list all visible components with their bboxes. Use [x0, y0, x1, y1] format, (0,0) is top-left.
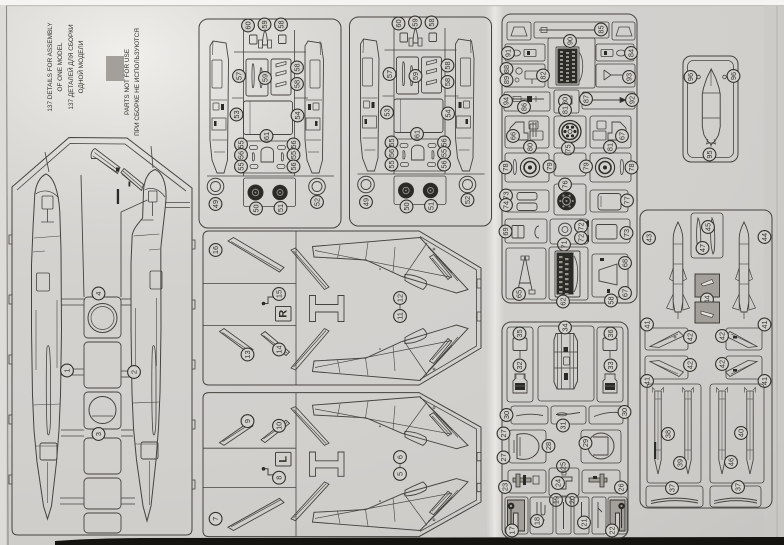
- svg-text:55: 55: [387, 138, 396, 146]
- svg-text:61: 61: [262, 132, 271, 140]
- svg-text:41: 41: [642, 320, 651, 328]
- svg-text:50: 50: [251, 204, 260, 212]
- svg-text:34: 34: [560, 323, 569, 331]
- svg-text:PARTS NOT FOR USE: PARTS NOT FOR USE: [124, 49, 131, 115]
- svg-text:57: 57: [385, 70, 394, 78]
- svg-text:36: 36: [606, 329, 615, 337]
- svg-text:73: 73: [622, 229, 631, 237]
- svg-text:91: 91: [503, 49, 512, 57]
- svg-text:16: 16: [211, 246, 220, 254]
- svg-text:82: 82: [538, 71, 547, 79]
- svg-text:56: 56: [289, 162, 298, 170]
- svg-text:96: 96: [729, 72, 738, 80]
- svg-text:53: 53: [382, 108, 391, 116]
- svg-text:37: 37: [733, 483, 742, 491]
- svg-text:81: 81: [560, 106, 569, 114]
- svg-text:42: 42: [685, 333, 694, 341]
- svg-text:56: 56: [439, 160, 448, 168]
- svg-text:75: 75: [563, 144, 572, 152]
- svg-text:69: 69: [501, 227, 510, 235]
- svg-text:58: 58: [276, 20, 285, 28]
- svg-text:49: 49: [211, 200, 220, 208]
- svg-text:53: 53: [232, 110, 241, 118]
- svg-text:56: 56: [387, 149, 396, 157]
- svg-text:137 DETAILS FOR ASSEMBLY: 137 DETAILS FOR ASSEMBLY: [47, 22, 54, 112]
- svg-text:17: 17: [507, 526, 516, 534]
- svg-text:60: 60: [243, 21, 252, 29]
- svg-text:90: 90: [565, 37, 574, 45]
- svg-text:58: 58: [292, 80, 301, 88]
- svg-text:79: 79: [545, 162, 554, 170]
- svg-text:31: 31: [558, 421, 567, 429]
- svg-text:ОДНОЙ МОДЕЛИ: ОДНОЙ МОДЕЛИ: [76, 40, 85, 93]
- svg-text:L: L: [278, 456, 290, 463]
- svg-text:58: 58: [443, 61, 452, 69]
- svg-text:54: 54: [443, 109, 452, 117]
- svg-text:42: 42: [717, 360, 726, 368]
- svg-text:39: 39: [675, 459, 684, 467]
- svg-text:78: 78: [501, 163, 510, 171]
- svg-text:47: 47: [698, 244, 707, 252]
- svg-text:55: 55: [387, 160, 396, 168]
- svg-text:44: 44: [760, 233, 769, 241]
- svg-text:2: 2: [129, 370, 138, 374]
- svg-text:86: 86: [519, 103, 528, 111]
- svg-text:25: 25: [558, 462, 567, 470]
- svg-text:54: 54: [293, 111, 302, 119]
- svg-text:95: 95: [705, 150, 714, 158]
- svg-text:59: 59: [410, 18, 419, 26]
- svg-text:18: 18: [532, 517, 541, 525]
- svg-text:29: 29: [581, 439, 590, 447]
- svg-text:67: 67: [617, 132, 626, 140]
- svg-text:R: R: [278, 310, 290, 318]
- svg-text:51: 51: [276, 204, 285, 212]
- svg-text:41: 41: [760, 320, 769, 328]
- svg-text:78: 78: [627, 163, 636, 171]
- svg-text:79: 79: [581, 162, 590, 170]
- svg-text:92: 92: [627, 96, 636, 104]
- svg-text:58: 58: [606, 296, 615, 304]
- svg-text:3: 3: [94, 432, 103, 436]
- svg-text:33: 33: [606, 361, 615, 369]
- svg-text:84: 84: [626, 49, 635, 57]
- svg-text:61: 61: [412, 130, 421, 138]
- svg-text:57: 57: [234, 72, 243, 80]
- svg-text:21: 21: [579, 518, 588, 526]
- svg-text:62: 62: [558, 297, 567, 305]
- svg-text:45: 45: [703, 223, 712, 231]
- svg-text:26: 26: [616, 483, 625, 491]
- svg-text:9: 9: [243, 419, 252, 423]
- svg-text:6: 6: [395, 455, 404, 459]
- svg-text:55: 55: [236, 162, 245, 170]
- svg-text:50: 50: [402, 202, 411, 210]
- svg-text:13: 13: [243, 350, 252, 358]
- svg-text:27: 27: [499, 429, 508, 437]
- svg-text:51: 51: [426, 202, 435, 210]
- svg-text:65: 65: [514, 290, 523, 298]
- svg-text:88: 88: [502, 65, 511, 73]
- svg-text:14: 14: [274, 345, 283, 353]
- svg-text:76: 76: [560, 180, 569, 188]
- svg-text:96: 96: [686, 73, 695, 81]
- svg-text:74: 74: [501, 201, 510, 209]
- svg-text:OF ONE MODEL: OF ONE MODEL: [57, 42, 64, 91]
- svg-text:67: 67: [620, 289, 629, 297]
- svg-text:56: 56: [439, 138, 448, 146]
- svg-text:ПРИ СБОРКЕ НЕ ИСПОЛЬЗУЮТСЯ: ПРИ СБОРКЕ НЕ ИСПОЛЬЗУЮТСЯ: [134, 28, 141, 136]
- svg-text:59: 59: [260, 20, 269, 28]
- svg-text:52: 52: [312, 198, 321, 206]
- svg-text:32: 32: [515, 361, 524, 369]
- svg-text:37: 37: [667, 484, 676, 492]
- svg-text:58: 58: [443, 78, 452, 86]
- svg-text:68: 68: [620, 259, 629, 267]
- svg-text:10: 10: [274, 422, 283, 430]
- svg-text:80: 80: [525, 143, 534, 151]
- svg-text:1: 1: [62, 368, 71, 372]
- svg-text:43: 43: [644, 234, 653, 242]
- svg-text:59: 59: [260, 74, 269, 82]
- svg-text:15: 15: [274, 290, 283, 298]
- svg-text:40: 40: [736, 429, 745, 437]
- svg-text:60: 60: [394, 19, 403, 27]
- svg-text:94: 94: [501, 97, 510, 105]
- svg-text:35: 35: [515, 329, 524, 337]
- svg-text:55: 55: [236, 140, 245, 148]
- svg-text:58: 58: [292, 63, 301, 71]
- svg-text:66: 66: [508, 132, 517, 140]
- svg-text:30: 30: [620, 408, 629, 416]
- svg-text:38: 38: [663, 430, 672, 438]
- svg-text:27: 27: [499, 453, 508, 461]
- svg-text:89: 89: [502, 76, 511, 84]
- svg-text:58: 58: [427, 18, 436, 26]
- svg-text:12: 12: [395, 294, 404, 302]
- svg-text:7: 7: [211, 517, 220, 521]
- svg-text:42: 42: [717, 332, 726, 340]
- svg-text:72: 72: [576, 222, 585, 230]
- svg-text:24: 24: [553, 479, 562, 487]
- svg-text:8: 8: [274, 476, 283, 480]
- svg-text:93: 93: [624, 73, 633, 81]
- svg-text:81: 81: [605, 143, 614, 151]
- svg-text:56: 56: [289, 140, 298, 148]
- svg-text:87: 87: [581, 95, 590, 103]
- svg-text:52: 52: [463, 196, 472, 204]
- svg-text:55: 55: [289, 151, 298, 159]
- svg-text:22: 22: [607, 526, 616, 534]
- svg-text:5: 5: [395, 472, 404, 476]
- svg-text:49: 49: [361, 198, 370, 206]
- svg-text:23: 23: [500, 483, 509, 491]
- svg-text:42: 42: [685, 361, 694, 369]
- svg-text:72: 72: [576, 234, 585, 242]
- svg-text:11: 11: [395, 312, 404, 320]
- svg-text:55: 55: [439, 149, 448, 157]
- svg-text:28: 28: [544, 442, 553, 450]
- svg-text:85: 85: [596, 25, 605, 33]
- svg-text:4: 4: [94, 291, 103, 295]
- svg-text:46: 46: [726, 458, 735, 466]
- svg-text:59: 59: [411, 72, 420, 80]
- svg-text:30: 30: [502, 411, 511, 419]
- svg-text:137 ДЕТАЛЕЙ ДЛЯ СБОРКИ: 137 ДЕТАЛЕЙ ДЛЯ СБОРКИ: [66, 24, 75, 110]
- svg-text:77: 77: [622, 196, 631, 204]
- svg-text:56: 56: [236, 151, 245, 159]
